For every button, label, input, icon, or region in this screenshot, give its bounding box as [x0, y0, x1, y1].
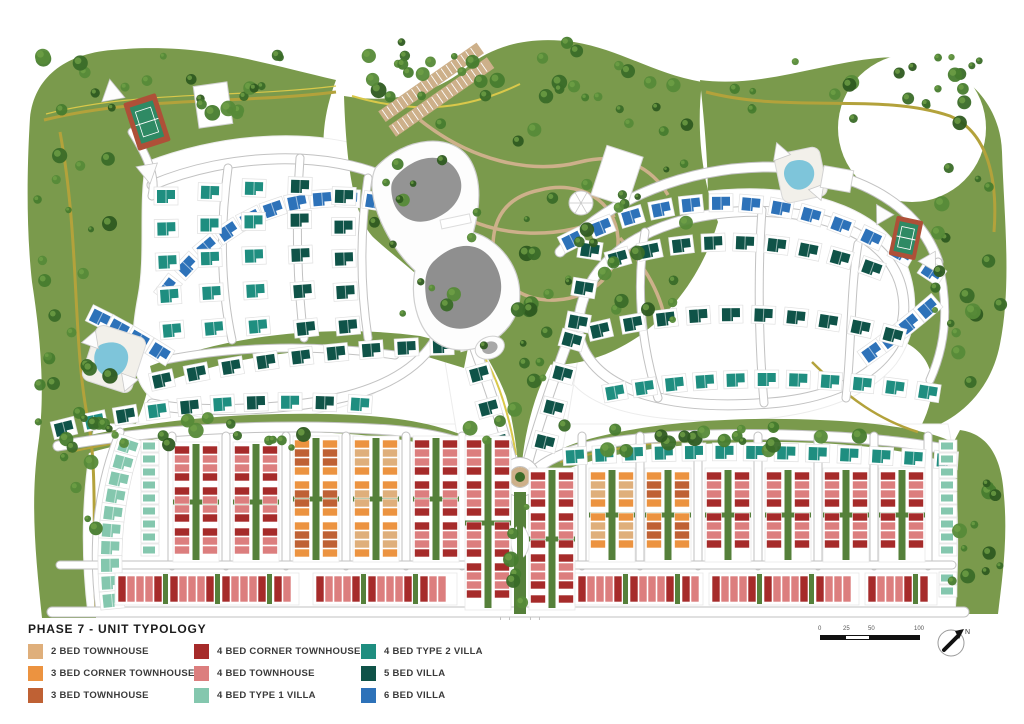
- north-label: N: [965, 629, 970, 636]
- legend-item: 2 BED TOWNHOUSE: [28, 644, 195, 659]
- legend-label: 5 BED VILLA: [384, 668, 445, 679]
- legend-label: 4 BED TOWNHOUSE: [217, 668, 315, 679]
- legend-item: 4 BED TOWNHOUSE: [194, 666, 361, 681]
- scale-bar: 02550100: [818, 626, 928, 640]
- legend-title: PHASE 7 - UNIT TYPOLOGY: [28, 622, 206, 636]
- legend-label: 4 BED TYPE 1 VILLA: [217, 690, 316, 701]
- legend-item: 6 BED VILLA: [361, 688, 483, 703]
- legend-label: 3 BED TOWNHOUSE: [51, 690, 149, 701]
- legend-item: 3 BED CORNER TOWNHOUSE: [28, 666, 195, 681]
- legend-item: 5 BED VILLA: [361, 666, 483, 681]
- legend-swatch: [194, 644, 209, 659]
- legend-swatch: [194, 666, 209, 681]
- legend-item: 4 BED CORNER TOWNHOUSE: [194, 644, 361, 659]
- legend-item: 3 BED TOWNHOUSE: [28, 688, 195, 703]
- north-arrow-icon: N: [932, 622, 976, 662]
- scale-bar-segments: [820, 635, 920, 640]
- scale-tick-label: 50: [868, 626, 875, 632]
- legend-item: 4 BED TYPE 2 VILLA: [361, 644, 483, 659]
- legend-swatch: [361, 666, 376, 681]
- masterplan-map: [0, 0, 1024, 620]
- masterplan-page: PHASE 7 - UNIT TYPOLOGY 2 BED TOWNHOUSE3…: [0, 0, 1024, 724]
- legend-column: 4 BED CORNER TOWNHOUSE4 BED TOWNHOUSE4 B…: [194, 644, 361, 710]
- scale-segment: [820, 635, 845, 640]
- legend-label: 4 BED TYPE 2 VILLA: [384, 646, 483, 657]
- legend-label: 4 BED CORNER TOWNHOUSE: [217, 646, 361, 657]
- legend-swatch: [28, 666, 43, 681]
- scale-tick-label: 0: [818, 626, 821, 632]
- legend-swatch: [28, 688, 43, 703]
- scale-tick-label: 25: [843, 626, 850, 632]
- legend-label: 2 BED TOWNHOUSE: [51, 646, 149, 657]
- legend: PHASE 7 - UNIT TYPOLOGY 2 BED TOWNHOUSE3…: [28, 622, 206, 714]
- legend-columns: 2 BED TOWNHOUSE3 BED CORNER TOWNHOUSE3 B…: [28, 644, 206, 714]
- scale-tick-label: 100: [914, 626, 924, 632]
- legend-label: 3 BED CORNER TOWNHOUSE: [51, 668, 195, 679]
- legend-swatch: [361, 644, 376, 659]
- north-arrow: N: [932, 622, 976, 667]
- legend-label: 6 BED VILLA: [384, 690, 445, 701]
- legend-item: 4 BED TYPE 1 VILLA: [194, 688, 361, 703]
- legend-swatch: [194, 688, 209, 703]
- legend-swatch: [361, 688, 376, 703]
- legend-column: 4 BED TYPE 2 VILLA5 BED VILLA6 BED VILLA: [361, 644, 483, 710]
- scale-segment: [870, 635, 920, 640]
- scale-segment: [845, 635, 870, 640]
- legend-swatch: [28, 644, 43, 659]
- legend-column: 2 BED TOWNHOUSE3 BED CORNER TOWNHOUSE3 B…: [28, 644, 195, 710]
- scale-bar-ticks: 02550100: [818, 626, 928, 634]
